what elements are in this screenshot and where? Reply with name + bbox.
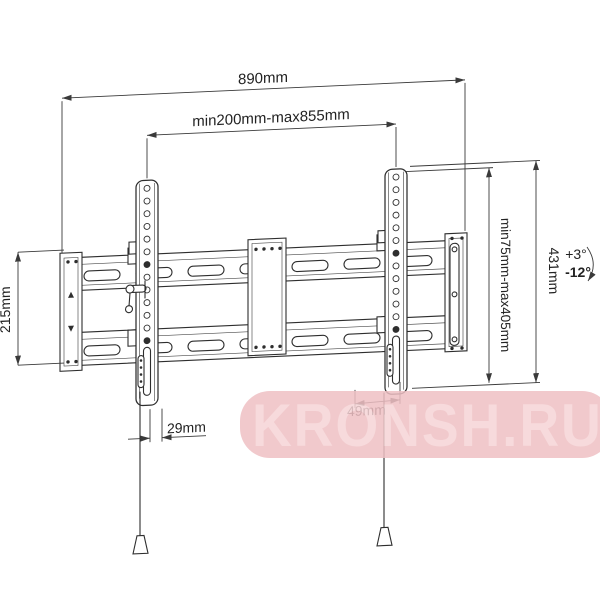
watermark-text: KRONSH.RU bbox=[252, 393, 600, 460]
left-pull-cord bbox=[133, 391, 148, 554]
tilt-down-label: -12° bbox=[565, 264, 591, 280]
total-width-label: 890mm bbox=[238, 69, 288, 88]
bottom-left-label: 29mm bbox=[167, 419, 206, 437]
arm-height-label: 431mm bbox=[546, 247, 562, 294]
right-end-cap bbox=[445, 233, 467, 352]
width-range-label: min200mm-max855mm bbox=[192, 106, 349, 130]
right-tv-arm bbox=[377, 169, 407, 395]
sheared-drawing-group: 890mm min200mm-max855mm 215mm 431mm min7… bbox=[0, 56, 562, 563]
plate-height-label: 215mm bbox=[0, 286, 13, 333]
left-end-cap bbox=[60, 252, 82, 371]
technical-drawing-page: 890mm min200mm-max855mm 215mm 431mm min7… bbox=[0, 0, 600, 600]
dimension-width-range: min200mm-max855mm bbox=[147, 104, 396, 178]
height-range-label: min75mm-max405mm bbox=[498, 218, 513, 353]
dimension-plate-height: 215mm bbox=[0, 250, 64, 366]
vesa-plate bbox=[248, 238, 286, 356]
left-cord-cone bbox=[133, 535, 148, 554]
tilt-up-label: +3° bbox=[565, 246, 587, 262]
right-cord-cone bbox=[377, 527, 392, 546]
left-tv-arm bbox=[126, 180, 159, 406]
wall-mount-diagram: 890mm min200mm-max855mm 215mm 431mm min7… bbox=[0, 0, 600, 600]
tilt-angle-annotation: +3° -12° bbox=[565, 246, 593, 281]
watermark: KRONSH.RU bbox=[240, 391, 600, 460]
